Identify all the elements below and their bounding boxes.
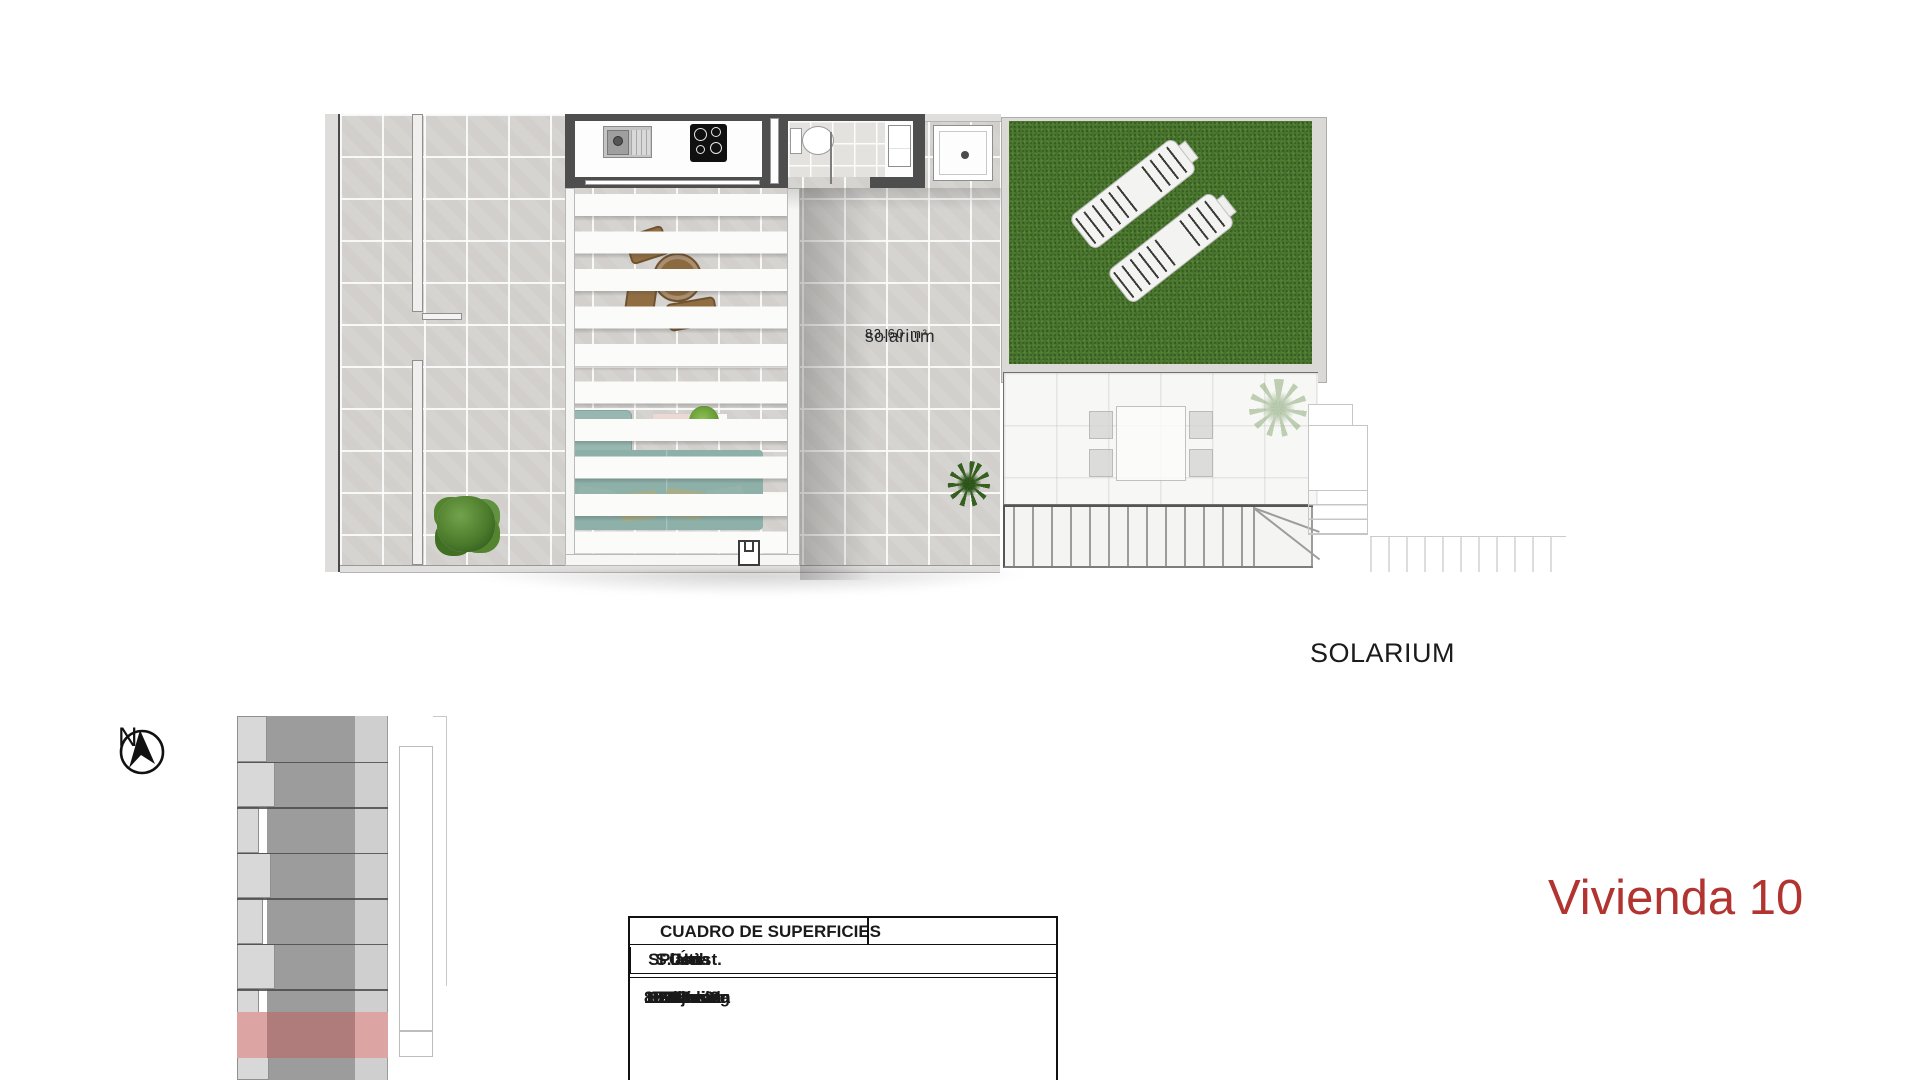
plan-top-edge	[925, 114, 1001, 122]
neighbor-steps-outline	[1308, 490, 1368, 535]
north-wall	[565, 114, 925, 121]
wall-shadow	[788, 188, 1002, 210]
pergola	[565, 188, 800, 572]
neighbor-stairs-outline	[1370, 536, 1566, 572]
stair-hatch-icon	[738, 540, 760, 566]
partition-wall-1	[762, 114, 770, 188]
site-key-street-outline	[433, 716, 447, 986]
site-key-highlight-unit-10	[267, 1012, 355, 1058]
surfaces-table-header: Planta Uso S. Útil S. Const.	[630, 947, 1056, 974]
plan-drop-shadow	[475, 571, 1025, 595]
ghost-palm-icon	[1249, 379, 1307, 437]
site-key-highlight	[237, 1012, 267, 1058]
ghost-chair	[1089, 449, 1113, 477]
site-key-unit	[237, 716, 267, 762]
room-area: 83.60 m²	[865, 326, 928, 342]
wc-door	[770, 118, 779, 184]
potted-plant-icon	[437, 496, 495, 552]
kitchen-sink-icon	[603, 126, 652, 158]
winder-line	[1253, 507, 1255, 566]
unit-title: Vivienda 10	[1548, 870, 1848, 926]
lawn-frame	[1001, 117, 1327, 383]
site-key-unit	[237, 898, 263, 944]
site-key-unit	[237, 853, 271, 899]
pergola-rail-bottom	[565, 554, 800, 566]
col-s-const: S. Const.	[630, 947, 739, 973]
neighbor-outline	[1308, 404, 1353, 426]
pergola-shadow	[800, 188, 892, 580]
pergola-rail-left	[565, 188, 575, 566]
table-double-line	[630, 977, 1056, 978]
site-key-unit	[237, 807, 259, 853]
site-key-unit	[237, 762, 275, 808]
toilet-icon	[790, 128, 802, 154]
site-key-street-outline	[399, 1031, 433, 1057]
door-leaf-line	[830, 132, 832, 184]
stair-treads	[1013, 507, 1253, 566]
north-arrow: N	[118, 722, 182, 822]
terrace-partition-wall-lower	[412, 360, 423, 565]
shower-drain	[961, 151, 969, 159]
ghost-chair	[1189, 411, 1213, 439]
wc-south-wall	[870, 177, 925, 188]
pergola-rail-right	[787, 188, 800, 566]
floorplan-page: solarium 83.60 m²	[0, 0, 1920, 1080]
ghost-chair	[1089, 411, 1113, 439]
kitchen-window-counter	[585, 180, 760, 185]
north-arrow-icon	[118, 724, 170, 778]
level-label: SOLARIUM	[1310, 638, 1470, 669]
surfaces-table-title: CUADRO DE SUPERFICIES	[630, 918, 1056, 945]
site-key-street-outline	[399, 746, 433, 1031]
surfaces-table: CUADRO DE SUPERFICIES Planta Uso S. Útil…	[628, 916, 1058, 1080]
ghost-dining-table	[1116, 406, 1186, 481]
pergola-slats	[568, 194, 797, 556]
site-key-highlight	[355, 1012, 388, 1058]
terrace-partition-wall-upper	[412, 114, 423, 312]
lower-terrace	[1003, 372, 1318, 505]
floor-plan: solarium 83.60 m²	[325, 114, 1327, 582]
sink-drainer	[631, 130, 650, 155]
neighbor-outline	[1308, 425, 1368, 491]
boiler-icon	[888, 125, 911, 167]
site-key-unit	[237, 944, 275, 990]
outdoor-shower-tray	[933, 125, 993, 181]
plan-left-edge	[325, 114, 340, 572]
partition-shelf	[422, 313, 462, 320]
partition-wall-2	[779, 114, 788, 188]
site-key-map	[237, 716, 449, 1080]
cooktop-icon	[690, 124, 727, 162]
staircase	[1003, 505, 1313, 568]
table-divider	[867, 918, 869, 945]
grass-lawn	[1009, 121, 1312, 364]
ghost-chair	[1189, 449, 1213, 477]
rooftop-rooms-strip	[565, 114, 925, 190]
sink-faucet	[613, 136, 623, 146]
